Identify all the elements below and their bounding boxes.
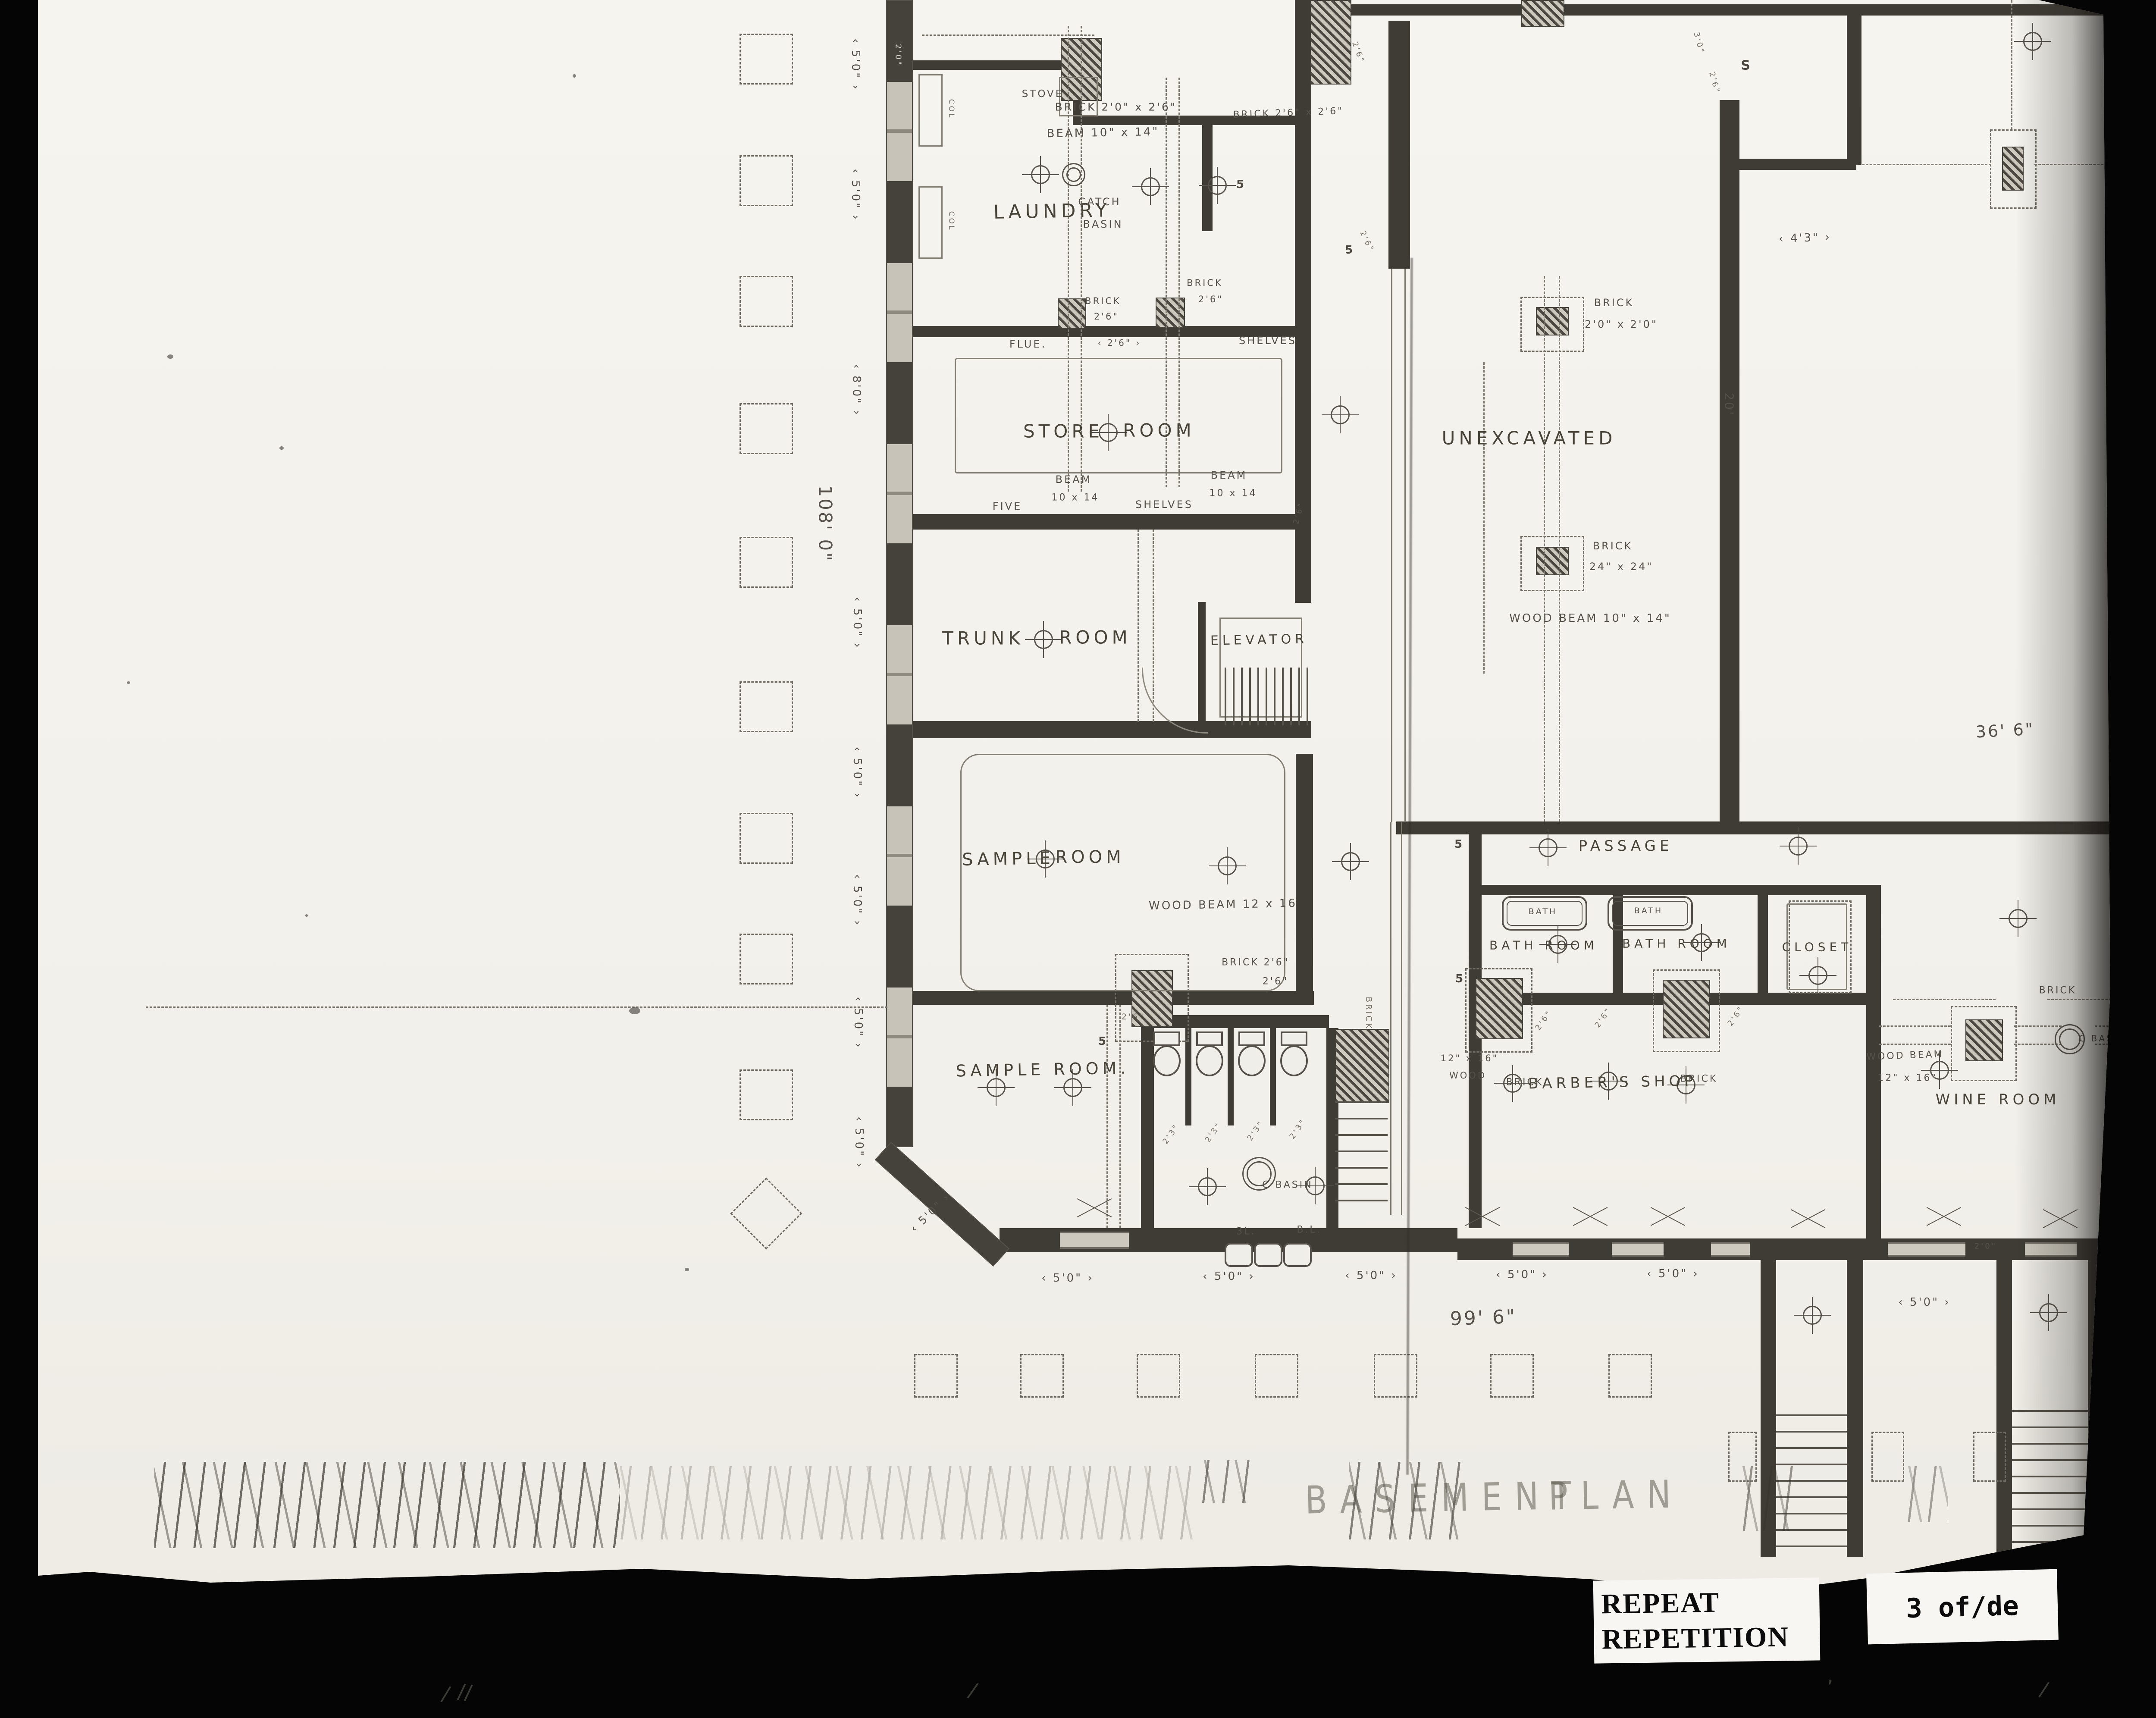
window-band bbox=[1888, 1242, 1965, 1257]
dashed-column-marker bbox=[1871, 1432, 1904, 1482]
exterior-staircase bbox=[2012, 1410, 2088, 1557]
repeat-stamp-line1: REPEAT bbox=[1601, 1583, 1812, 1622]
annotation-label: C BASIN bbox=[1262, 1180, 1313, 1191]
annotation-label: 12" x 16" bbox=[1877, 1073, 1937, 1084]
wall-segment bbox=[913, 514, 1311, 530]
wall-segment bbox=[1996, 1260, 2012, 1557]
dashed-line-vertical bbox=[1559, 276, 1560, 821]
dashed-line-horizontal bbox=[2095, 1044, 2121, 1045]
dimension-label: 5'0" bbox=[1496, 1268, 1548, 1281]
room-label: PASSAGE bbox=[1579, 837, 1673, 855]
wash-basin bbox=[1254, 1243, 1282, 1267]
dashed-column-marker bbox=[1020, 1354, 1064, 1398]
dimension-label: 5'0" bbox=[851, 874, 864, 927]
annotation-label: 2'6" bbox=[1198, 294, 1223, 304]
dashed-line-vertical bbox=[1544, 276, 1545, 821]
dashed-line-horizontal bbox=[922, 34, 1094, 36]
window-band bbox=[2025, 1242, 2077, 1257]
pier-hatched bbox=[1521, 0, 1564, 27]
window-x-icon bbox=[1571, 1204, 1610, 1228]
wall-segment bbox=[1388, 21, 1410, 269]
outline-rect bbox=[918, 74, 943, 147]
tiny-annotation: 2'6" bbox=[1122, 1012, 1145, 1022]
room-label: BARBER'S SHOP bbox=[1528, 1072, 1697, 1093]
pier-dashed-outline bbox=[1951, 1006, 2017, 1081]
column-symbol bbox=[1808, 966, 1827, 985]
toilet-tank bbox=[1153, 1031, 1180, 1046]
annotation-label: BRICK bbox=[1593, 540, 1633, 552]
room-label: ROOM bbox=[1059, 627, 1131, 648]
annotation-label: BRICK bbox=[1680, 1074, 1718, 1085]
dashed-line-horizontal bbox=[2034, 164, 2147, 165]
dashed-column-marker bbox=[1973, 1432, 2006, 1482]
plan-title: PLAN bbox=[1548, 1472, 1684, 1519]
dimension-label: 5'0" bbox=[851, 597, 864, 649]
catch-basin-icon bbox=[1062, 163, 1085, 186]
annotation-label: FLUE. bbox=[1009, 338, 1047, 350]
dashed-line-horizontal bbox=[1893, 999, 1996, 1000]
dashed-line-vertical bbox=[1119, 1005, 1121, 1228]
dashed-column-marker bbox=[740, 934, 793, 984]
annotation-label: 10 x 14 bbox=[1052, 492, 1100, 503]
dashed-line-vertical bbox=[1483, 362, 1485, 674]
toilet-tank bbox=[1281, 1031, 1307, 1046]
annotation-label: WOOD bbox=[1449, 1070, 1486, 1081]
room-label: STORE bbox=[1023, 421, 1103, 442]
toilet-tank bbox=[1196, 1031, 1223, 1046]
dashed-column-marker bbox=[914, 1354, 958, 1398]
paper-speck bbox=[629, 1007, 640, 1014]
tiny-annotation: 3'0" bbox=[1692, 31, 1706, 55]
annotation-label: BEAM bbox=[1056, 473, 1092, 486]
repeat-stamp-line2: REPETITION bbox=[1601, 1619, 1812, 1658]
dimension-label: 2'6" bbox=[1098, 338, 1141, 348]
room-label: ROOM bbox=[1123, 420, 1195, 441]
pier-dashed-outline bbox=[1520, 536, 1584, 591]
ground-hatching bbox=[1198, 1460, 1254, 1503]
column-symbol bbox=[2023, 32, 2042, 51]
room-label: ELEVATOR bbox=[1210, 632, 1308, 649]
scratch-mark: / bbox=[2037, 1677, 2051, 1702]
wall-segment bbox=[1347, 4, 2147, 16]
wall-segment bbox=[1720, 100, 1739, 822]
toilet-bowl bbox=[1238, 1045, 1266, 1076]
room-label: SAMPLE ROOM. bbox=[956, 1058, 1130, 1080]
annotation-label: 2'6" bbox=[1094, 311, 1119, 322]
dashed-column-marker bbox=[740, 155, 793, 206]
paper-speck bbox=[127, 681, 130, 684]
wall-segment bbox=[1722, 159, 1856, 170]
window-x-icon bbox=[2041, 1206, 2080, 1230]
window-x-icon bbox=[1924, 1204, 1963, 1228]
tiny-annotation: 2'6" bbox=[1707, 71, 1722, 95]
staircase-by-elevator bbox=[1225, 668, 1311, 725]
room-label: UNEXCAVATED bbox=[1442, 428, 1617, 449]
wall-segment bbox=[2088, 1260, 2103, 1557]
tiny-annotation: 2'6" bbox=[1593, 1006, 1613, 1030]
wall-segment bbox=[1396, 821, 2147, 834]
annotation-label: BRICK 2'0" x 2'6" bbox=[1055, 101, 1177, 113]
annotation-label: BEAM 10" x 14" bbox=[1047, 125, 1159, 141]
wash-basin bbox=[1225, 1243, 1253, 1267]
annotation-label: SHELVES bbox=[1135, 498, 1193, 511]
section-mark: 5 bbox=[1098, 1035, 1108, 1048]
annotation-label: BATH bbox=[1529, 907, 1557, 916]
window-x-icon bbox=[1789, 1206, 1827, 1230]
tiny-annotation: 2'3" bbox=[1161, 1122, 1181, 1146]
wall-segment bbox=[1296, 754, 1313, 995]
dashed-column-marker bbox=[1374, 1354, 1417, 1398]
annotation-label: 20' bbox=[1722, 392, 1736, 416]
ground-hatching bbox=[154, 1462, 620, 1548]
wall-segment bbox=[1270, 1028, 1276, 1125]
dimension-label: 5'0" bbox=[1647, 1267, 1699, 1280]
room-label: SAMPLE bbox=[962, 848, 1054, 870]
room-label: ROOM bbox=[1055, 847, 1125, 867]
annotation-label: BRICK bbox=[1506, 1077, 1544, 1088]
wall-segment bbox=[1847, 4, 1861, 165]
toilet-tank bbox=[1238, 1031, 1265, 1046]
dimension-label: 5'0" bbox=[1203, 1270, 1255, 1283]
scratch-mark: / bbox=[966, 1678, 980, 1703]
tiny-annotation: BRICK bbox=[1364, 997, 1373, 1030]
dashed-column-marker bbox=[740, 276, 793, 327]
column-symbol bbox=[1198, 1177, 1217, 1196]
dashed-column-marker bbox=[1255, 1354, 1298, 1398]
paper-speck bbox=[685, 1268, 689, 1271]
paper-speck bbox=[167, 354, 173, 359]
column-symbol bbox=[1803, 1306, 1822, 1325]
dashed-line-horizontal bbox=[1879, 1044, 1951, 1045]
annotation-label: BRICK bbox=[1085, 296, 1121, 306]
column-symbol bbox=[1539, 838, 1557, 857]
scratch-mark: ’ bbox=[1826, 1675, 1835, 1700]
dashed-line-vertical bbox=[1138, 530, 1139, 722]
tiny-annotation: 2'0" bbox=[1974, 1242, 1997, 1251]
section-mark: 5 bbox=[1345, 244, 1354, 257]
wall-segment bbox=[1185, 1028, 1191, 1125]
dashed-column-marker bbox=[1137, 1354, 1180, 1398]
pier-dashed-outline bbox=[1653, 969, 1720, 1052]
annotation-label: 2'0" x 2'0" bbox=[1585, 318, 1658, 330]
annotation-label: 99' 6" bbox=[1450, 1306, 1517, 1330]
dashed-line-horizontal bbox=[1862, 164, 1991, 165]
annotation-label: WOOD BEAM 12 x 16 bbox=[1149, 897, 1297, 912]
annotation-label: 108' 0" bbox=[815, 485, 836, 562]
pier-hatched bbox=[1156, 298, 1185, 328]
dashed-line-horizontal bbox=[2095, 1025, 2121, 1027]
dimension-label: 4'3" bbox=[1779, 231, 1832, 245]
wall-segment bbox=[1295, 0, 1311, 326]
column-symbol bbox=[1034, 630, 1053, 649]
annotation-label: 10 x 14 bbox=[1210, 488, 1257, 499]
dashed-line-horizontal bbox=[2047, 999, 2147, 1000]
wall-segment bbox=[1847, 1260, 1863, 1557]
page-number-text: 3 of/de bbox=[1905, 1589, 2019, 1624]
annotation-label: BEAM bbox=[1211, 469, 1247, 481]
pier-dashed-outline bbox=[1520, 297, 1584, 352]
pier-hatched bbox=[1335, 1029, 1389, 1103]
dashed-column-marker bbox=[740, 403, 793, 454]
dashed-line-horizontal bbox=[2014, 1044, 2062, 1045]
section-mark: 5 bbox=[1455, 972, 1465, 985]
dimension-label: 5'0" bbox=[852, 997, 865, 1049]
dashed-column-marker bbox=[1490, 1354, 1534, 1398]
dashed-line-vertical bbox=[2011, 0, 2012, 129]
column-symbol bbox=[1789, 837, 1808, 856]
room-label: BATH ROOM bbox=[1489, 938, 1598, 953]
annotation-label: 2'6" bbox=[1263, 976, 1288, 987]
wall-segment bbox=[1482, 885, 1879, 895]
thin-wall bbox=[1391, 269, 1406, 822]
paper-speck bbox=[573, 74, 576, 78]
thin-wall bbox=[1390, 822, 1402, 1215]
wall-segment bbox=[1758, 895, 1768, 994]
pier-hatched bbox=[1058, 298, 1086, 329]
exterior-wall-window-bays bbox=[886, 0, 913, 1147]
dimension-label: 5'0" bbox=[1041, 1272, 1094, 1285]
dimension-label: 5'0" bbox=[1345, 1269, 1398, 1282]
column-symbol bbox=[1141, 177, 1160, 196]
wash-basin bbox=[1283, 1243, 1312, 1267]
room-label: CLOSET bbox=[1782, 940, 1852, 954]
column-symbol bbox=[1341, 852, 1360, 871]
column-symbol bbox=[2009, 909, 2028, 928]
ground-hatching bbox=[1905, 1466, 1948, 1522]
annotation-label: BRICK bbox=[2039, 985, 2077, 996]
wall-label: 2'0" bbox=[894, 44, 903, 66]
dashed-column-marker bbox=[740, 34, 793, 85]
pier-dashed-outline bbox=[1465, 968, 1532, 1053]
dashed-column-marker bbox=[1608, 1354, 1652, 1398]
column-symbol bbox=[1031, 165, 1050, 184]
annotation-label: BATH bbox=[1634, 906, 1663, 915]
column-symbol bbox=[1218, 856, 1237, 875]
tiny-annotation: 2'3" bbox=[1245, 1119, 1266, 1143]
dashed-column-marker bbox=[740, 537, 793, 588]
wall-segment bbox=[1295, 337, 1311, 524]
annotation-label: FIVE bbox=[993, 500, 1022, 512]
tiny-annotation: 2'3" bbox=[1203, 1121, 1223, 1144]
window-x-icon bbox=[1648, 1204, 1687, 1228]
tiny-annotation: 2'6" bbox=[1533, 1009, 1554, 1032]
annotation-label: BASIN bbox=[1083, 218, 1123, 230]
room-label: TRUNK bbox=[942, 628, 1024, 649]
section-mark: 5 bbox=[1236, 178, 1246, 191]
room-label: BATH ROOM bbox=[1622, 937, 1731, 951]
annotation-label: SHELVES bbox=[1239, 335, 1297, 347]
repeat-stamp: REPEAT REPETITION bbox=[1593, 1577, 1821, 1663]
tiny-annotation: COL bbox=[947, 99, 956, 119]
annotation-label: BRICK bbox=[1594, 297, 1634, 309]
toilet-bowl bbox=[1153, 1045, 1181, 1076]
outline-rect bbox=[918, 186, 943, 259]
column-symbol bbox=[2039, 1303, 2058, 1322]
tiny-annotation: 2'6" bbox=[1350, 41, 1366, 65]
dimension-label: 5'0" bbox=[849, 38, 862, 91]
tiny-annotation: 2'6" bbox=[1726, 1004, 1746, 1028]
ground-hatching bbox=[620, 1466, 1198, 1539]
dimension-label: 5'0" bbox=[851, 746, 864, 799]
tiny-annotation: 2'6" bbox=[1358, 229, 1376, 254]
dashed-column-marker bbox=[740, 1069, 793, 1120]
dimension-label: 5'0" bbox=[1898, 1296, 1951, 1309]
column-symbol bbox=[1063, 1078, 1082, 1097]
toilet-bowl bbox=[1196, 1045, 1223, 1076]
dashed-column-marker bbox=[740, 681, 793, 732]
window-x-icon bbox=[1075, 1195, 1114, 1220]
dimension-label: 5'0" bbox=[849, 169, 862, 221]
window-band bbox=[1612, 1242, 1664, 1257]
toilet-bowl bbox=[1280, 1045, 1308, 1076]
annotation-label: BRICK bbox=[1187, 278, 1223, 288]
dimension-label: 8'0" bbox=[850, 364, 863, 417]
dimension-label: 5'0" bbox=[852, 1116, 865, 1169]
room-label: WINE ROOM bbox=[1936, 1091, 2060, 1108]
annotation-label: BRICK 2'6" bbox=[1222, 957, 1290, 968]
annotation-label: 3L. bbox=[1236, 1226, 1256, 1237]
page-number-stamp: 3 of/de bbox=[1866, 1569, 2059, 1645]
wall-segment bbox=[1295, 530, 1311, 603]
dashed-column-marker bbox=[730, 1178, 802, 1250]
column-symbol bbox=[1331, 405, 1350, 424]
window-band bbox=[1513, 1242, 1569, 1257]
annotation-label: BRICK 2'6" x 2'6" bbox=[1233, 106, 1344, 120]
dashed-column-marker bbox=[740, 813, 793, 864]
dashed-line-horizontal bbox=[1879, 1025, 1951, 1027]
column-symbol bbox=[1208, 176, 1227, 195]
annotation-label: CATCH bbox=[1078, 196, 1121, 208]
plan-title: BASEMENT bbox=[1305, 1473, 1584, 1523]
ground-hatching bbox=[1741, 1466, 1797, 1531]
outline-rect bbox=[960, 754, 1285, 991]
annotation-label: C BASIN bbox=[2079, 1033, 2126, 1044]
section-mark: 5 bbox=[1454, 838, 1464, 851]
wall-segment bbox=[913, 991, 1314, 1005]
annotation-label: STOVE bbox=[1022, 88, 1064, 100]
fold-crease bbox=[1406, 258, 1413, 1475]
section-mark: S bbox=[1741, 58, 1752, 73]
annotation-label: B.L. bbox=[1297, 1225, 1321, 1235]
window-x-icon bbox=[1463, 1204, 1502, 1228]
blueprint-paper: LAUNDRYCATCHBASINSTOREROOMTRUNKROOMELEVA… bbox=[38, 0, 2110, 1600]
annotation-label: 36' 6" bbox=[1975, 719, 2035, 741]
scanned-blueprint-photo: LAUNDRYCATCHBASINSTOREROOMTRUNKROOMELEVA… bbox=[0, 0, 2156, 1718]
window-band bbox=[1711, 1242, 1750, 1257]
annotation-label: 12" x 16" bbox=[1441, 1053, 1499, 1063]
column-symbol bbox=[2121, 1061, 2140, 1080]
scratch-mark: / bbox=[439, 1681, 452, 1706]
outline-rect bbox=[955, 358, 1282, 473]
scratch-mark: // bbox=[456, 1679, 473, 1705]
pier-hatched bbox=[1310, 0, 1351, 85]
window-band bbox=[1060, 1232, 1129, 1249]
annotation-label: 24" x 24" bbox=[1589, 561, 1654, 573]
tiny-annotation: COL bbox=[947, 211, 956, 232]
annotation-label: WOOD BEAM bbox=[1866, 1049, 1944, 1062]
staircase-interior bbox=[1335, 1101, 1388, 1213]
tiny-annotation: 2'3" bbox=[1288, 1117, 1308, 1141]
dashed-line-horizontal bbox=[146, 1006, 887, 1008]
annotation-label: WOOD BEAM 10" x 14" bbox=[1509, 612, 1671, 625]
window-band bbox=[2108, 1242, 2142, 1257]
wall-segment bbox=[1202, 116, 1213, 231]
column-symbol bbox=[987, 1078, 1006, 1097]
paper-speck bbox=[279, 446, 284, 450]
dashed-line-horizontal bbox=[2014, 1025, 2062, 1027]
wall-segment bbox=[1141, 1028, 1154, 1231]
pier-dashed-outline bbox=[1990, 129, 2037, 209]
paper-speck bbox=[305, 914, 308, 917]
wall-segment bbox=[1228, 1028, 1234, 1125]
